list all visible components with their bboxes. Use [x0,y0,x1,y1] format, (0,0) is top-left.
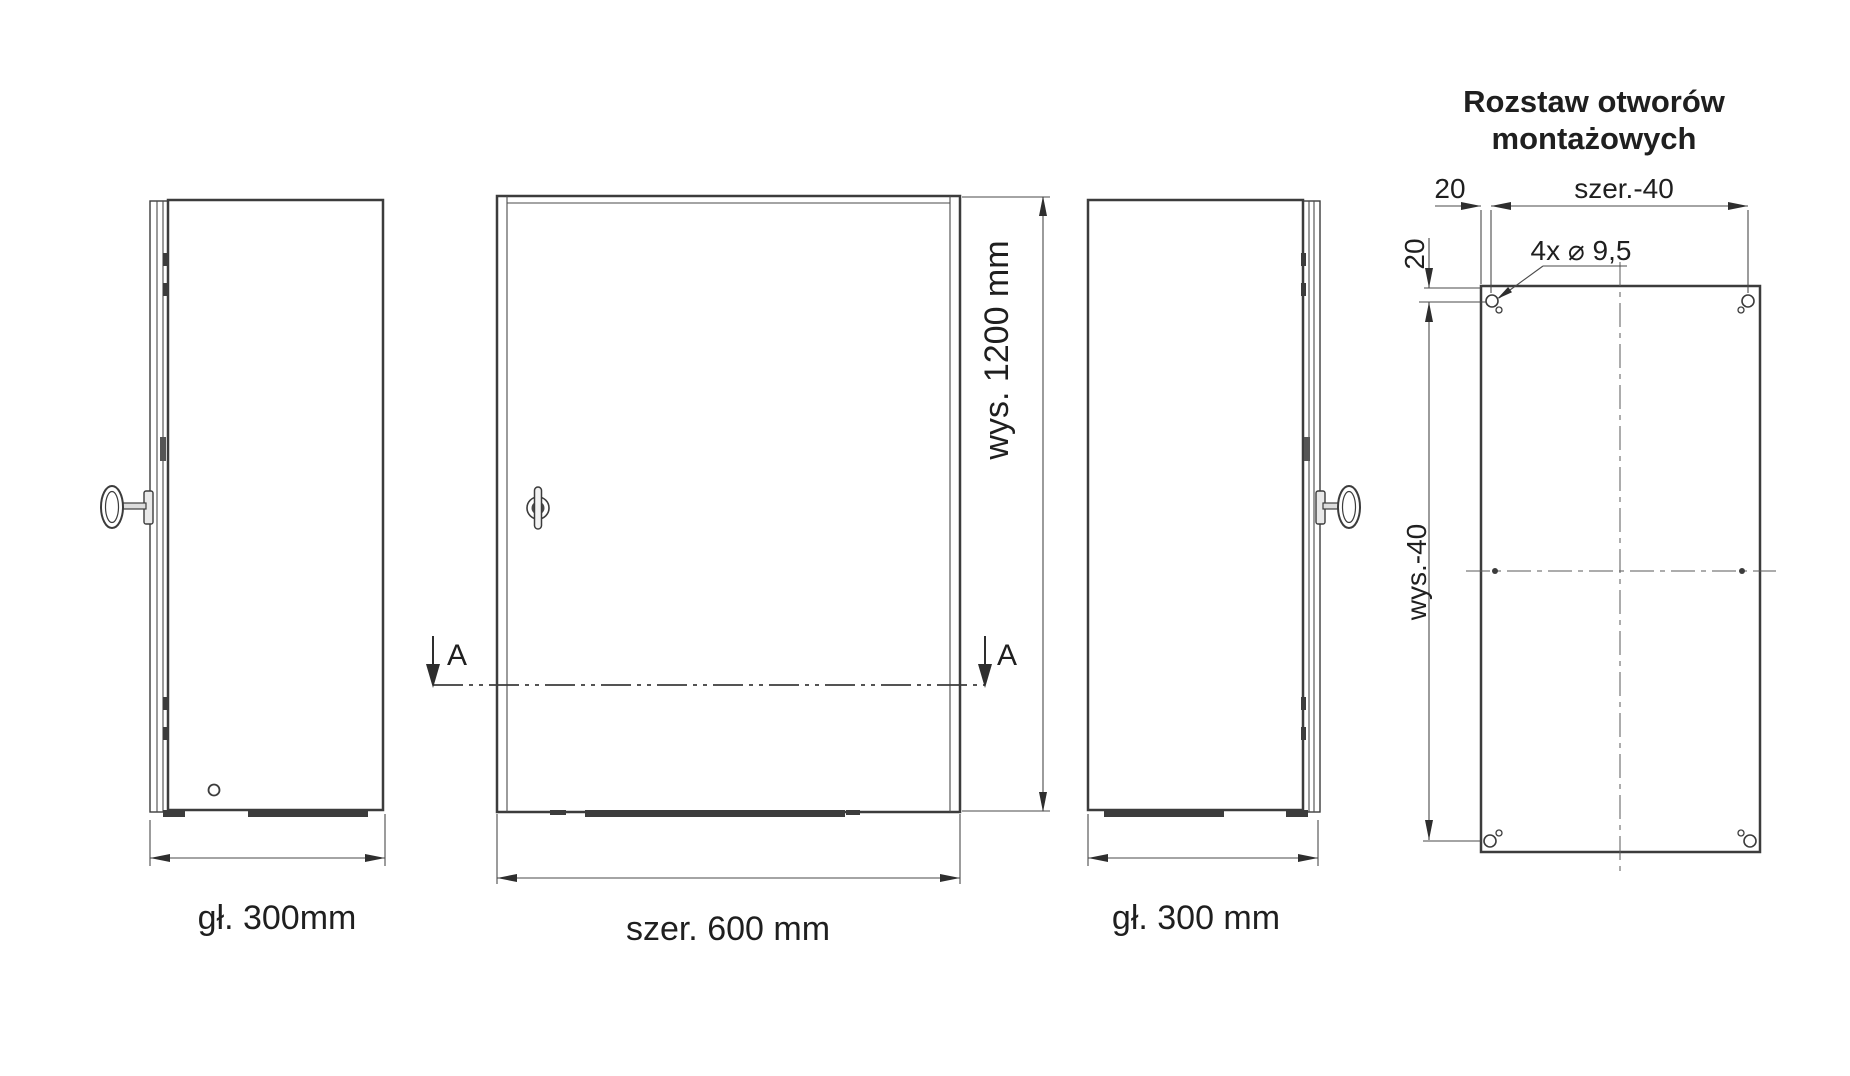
drawing-page: gł. 300mm A A [0,0,1850,1076]
mounting-hole [1486,295,1498,307]
title-line-1: Rozstaw otworów [1463,84,1726,119]
foot [1286,810,1308,817]
width-label: szer. 600 mm [626,910,830,948]
hinge-mark [1301,727,1306,740]
door-handle [101,486,153,528]
hinge-mark [163,697,168,710]
height-label: wys. 1200 mm [978,240,1016,460]
foot [1104,810,1224,817]
mounting-hole [1484,835,1496,847]
foot [163,810,185,817]
arrowhead [1425,820,1433,840]
center-mark [1739,568,1745,574]
left-side-view: gł. 300mm [101,200,385,937]
holes-callout-label: 4x ⌀ 9,5 [1531,235,1632,266]
mounting-hole-diagram: Rozstaw otworów montażowych 20 [1399,84,1776,876]
mounting-hole [1742,295,1754,307]
door-handle [1316,486,1360,528]
arrowhead [1039,196,1047,216]
center-mark [1492,568,1498,574]
dimension-depth-left [150,814,385,866]
arrowhead [1728,202,1748,210]
dimension-width [497,814,960,884]
dimension-left-offset: 20 [1399,238,1486,302]
foot [550,810,566,815]
hinge-mark [163,283,168,296]
arrowhead [940,874,960,882]
handle-stem [121,503,146,509]
hinge-mark [1301,283,1306,296]
arrowhead [1088,854,1108,862]
drawing-title: Rozstaw otworów montażowych [1463,84,1726,156]
technical-drawing-canvas: gł. 300mm A A [0,0,1850,1076]
arrowhead [497,874,517,882]
dim-offset-left-label: 20 [1399,238,1430,269]
dimension-top-offset: 20 [1434,173,1481,284]
front-view: A A wys. 1200 mm szer. 600 mm [426,196,1050,948]
hinge-mark [1301,697,1306,710]
cabinet-body [168,200,383,810]
foot [248,810,368,817]
dim-height-spacing-label: wys.-40 [1401,524,1432,621]
title-line-2: montażowych [1492,121,1697,156]
mounting-hole [1744,835,1756,847]
latch-mark [160,437,166,461]
dim-width-spacing-label: szer.-40 [1574,173,1674,204]
handle-ring-outer [1338,486,1360,528]
arrowhead [1491,202,1511,210]
hinge-mark [163,727,168,740]
drain-hole [209,785,220,796]
hinge-mark [163,253,168,266]
section-arrowhead [978,664,992,688]
latch-mark [1304,437,1310,461]
arrowhead [1039,792,1047,812]
arrowhead [1425,302,1433,322]
depth-label-left: gł. 300mm [198,899,357,937]
hinge-mark [1301,253,1306,266]
small-hole [1738,830,1744,836]
small-hole [1496,307,1502,313]
dim-offset-top-label: 20 [1434,173,1465,204]
foot [846,810,860,815]
right-side-view: gł. 300 mm [1088,200,1360,937]
lock-lever [535,487,542,529]
small-hole [1496,830,1502,836]
section-letter-left: A [447,639,467,672]
cabinet-door [497,196,960,812]
arrowhead [1298,854,1318,862]
handle-ring-outer [101,486,123,528]
arrowhead [150,854,170,862]
arrowhead [365,854,385,862]
foot [585,810,845,817]
arrowhead [1425,268,1433,288]
dimension-depth-right [1088,814,1318,866]
small-hole [1738,307,1744,313]
depth-label-right: gł. 300 mm [1112,899,1280,937]
section-letter-right: A [997,639,1017,672]
cabinet-body [1088,200,1303,810]
